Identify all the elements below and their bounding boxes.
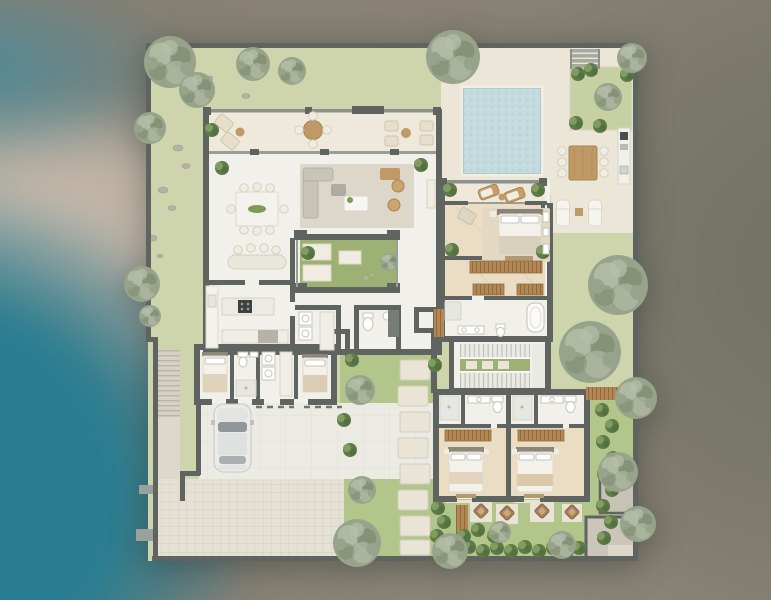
outdoor-dining-set [558, 146, 609, 180]
closet-row [470, 261, 542, 273]
wardrobe [445, 430, 491, 441]
car [211, 404, 254, 472]
sun-loungers [551, 195, 609, 233]
tiled-driveway [158, 479, 344, 556]
villa-floor-plan [0, 0, 771, 600]
gate-pad [139, 485, 153, 494]
wardrobe [473, 284, 504, 295]
bed-bench [505, 256, 533, 261]
sofa-set [300, 164, 414, 228]
side-walk [158, 417, 180, 479]
guest-bed-2 [512, 447, 559, 498]
staircase [460, 344, 546, 388]
aerial-scene [0, 0, 771, 600]
toilet [497, 327, 505, 336]
round-table [304, 121, 323, 140]
floor-plant [414, 158, 428, 172]
shower [445, 302, 461, 320]
side-table [401, 128, 411, 138]
wardrobe [517, 284, 543, 295]
side-steps [158, 349, 180, 417]
stove [238, 300, 252, 313]
side-table [236, 128, 245, 137]
gate-pad [136, 529, 153, 541]
staff-bed-2 [302, 354, 328, 392]
indoor-plant [215, 161, 229, 175]
console [427, 180, 435, 208]
nightstand [490, 211, 496, 217]
outdoor-kitchen [618, 128, 630, 184]
side-table [575, 208, 583, 216]
guest-bed-1 [444, 447, 489, 498]
stepping-stone-path [398, 360, 430, 555]
wardrobe [518, 430, 564, 441]
shower-box [388, 310, 399, 337]
staff-bed-1 [202, 352, 228, 392]
swimming-pool [462, 87, 542, 175]
slatted-screen [434, 309, 444, 337]
elevator-cab [419, 312, 433, 328]
toilet [363, 318, 373, 331]
cabinet [258, 330, 278, 343]
